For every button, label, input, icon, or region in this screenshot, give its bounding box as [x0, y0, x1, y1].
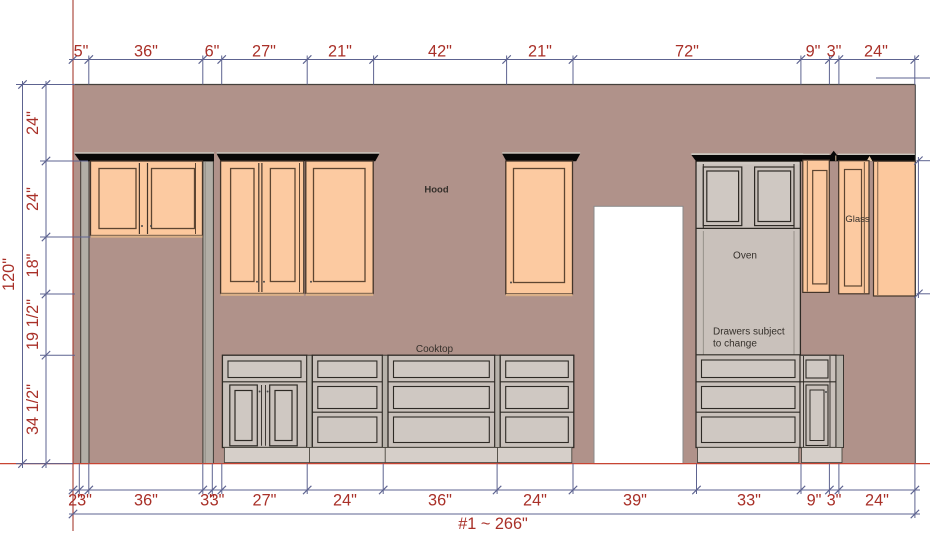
svg-text:24": 24" [24, 111, 42, 135]
svg-text:42": 42" [428, 43, 452, 61]
svg-text:#1 ~ 266": #1 ~ 266" [458, 515, 528, 533]
svg-text:39": 39" [623, 492, 647, 510]
svg-text:9": 9" [807, 492, 822, 510]
svg-text:24": 24" [865, 492, 889, 510]
svg-text:24": 24" [523, 492, 547, 510]
svg-text:33": 33" [737, 492, 761, 510]
svg-text:18": 18" [24, 253, 42, 277]
svg-text:9": 9" [806, 43, 821, 61]
svg-text:5": 5" [74, 43, 89, 61]
svg-text:3": 3" [827, 492, 842, 510]
svg-text:72": 72" [675, 43, 699, 61]
svg-text:Glass: Glass [845, 214, 870, 225]
svg-text:Cooktop: Cooktop [416, 344, 454, 355]
svg-text:27": 27" [252, 43, 276, 61]
svg-text:24": 24" [864, 43, 888, 61]
svg-text:36": 36" [134, 43, 158, 61]
svg-text:to change: to change [713, 339, 757, 350]
svg-text:Hood: Hood [424, 184, 448, 195]
svg-text:Oven: Oven [733, 250, 757, 261]
svg-text:120": 120" [0, 258, 18, 291]
svg-text:19 1/2": 19 1/2" [24, 299, 42, 350]
svg-text:21": 21" [528, 43, 552, 61]
svg-text:3": 3" [77, 492, 92, 510]
svg-text:36": 36" [428, 492, 452, 510]
svg-text:24": 24" [333, 492, 357, 510]
svg-text:3": 3" [827, 43, 842, 61]
svg-text:3": 3" [210, 492, 225, 510]
svg-text:34 1/2": 34 1/2" [24, 384, 42, 435]
svg-text:24": 24" [24, 187, 42, 211]
svg-text:36": 36" [134, 492, 158, 510]
svg-text:21": 21" [328, 43, 352, 61]
svg-text:Drawers subject: Drawers subject [713, 327, 785, 338]
svg-text:6": 6" [205, 43, 220, 61]
svg-text:27": 27" [253, 492, 277, 510]
